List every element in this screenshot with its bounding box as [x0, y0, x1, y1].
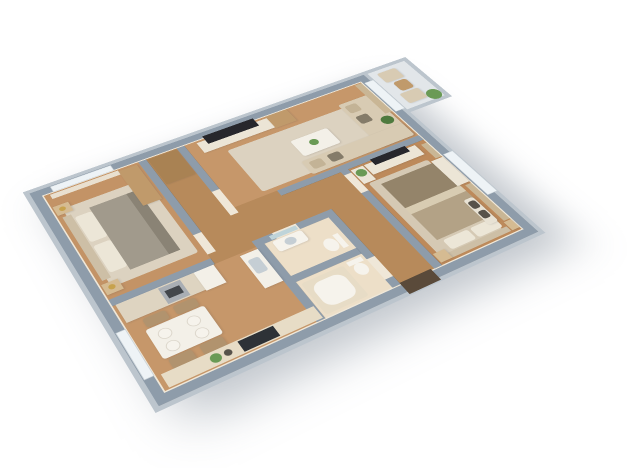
floorplan-render — [0, 0, 627, 468]
apartment-3d-plan — [23, 57, 597, 420]
